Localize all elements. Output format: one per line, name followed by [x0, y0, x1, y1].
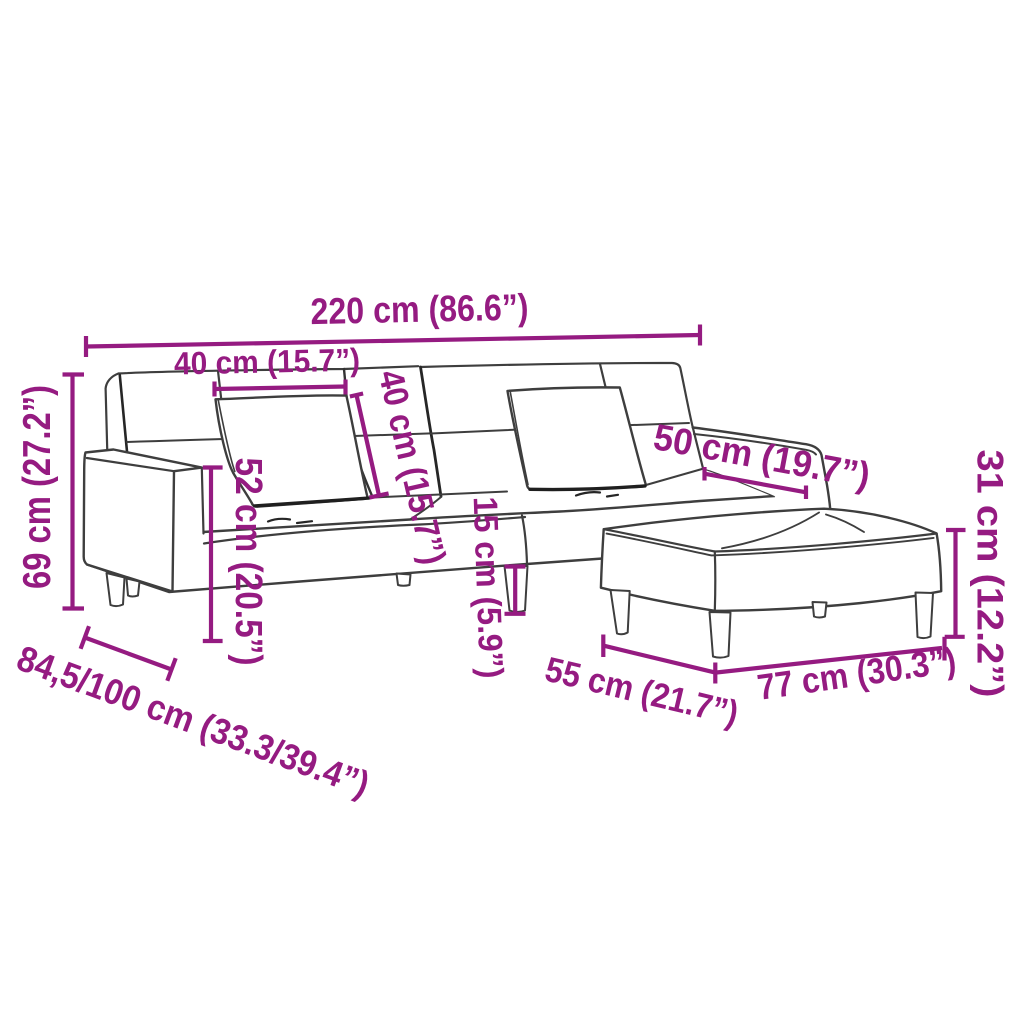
svg-text:15 cm (5.9”): 15 cm (5.9”) [466, 496, 510, 679]
svg-text:77 cm (30.3”): 77 cm (30.3”) [755, 639, 959, 708]
svg-text:220 cm (86.6”): 220 cm (86.6”) [310, 287, 529, 333]
svg-text:40 cm (15.7”): 40 cm (15.7”) [174, 342, 361, 382]
svg-text:31 cm (12.2”): 31 cm (12.2”) [970, 450, 1011, 698]
svg-text:52 cm (20.5”): 52 cm (20.5”) [227, 458, 269, 666]
svg-text:84,5/100 cm (33.3/39.4”): 84,5/100 cm (33.3/39.4”) [12, 637, 375, 805]
svg-text:55 cm (21.7”): 55 cm (21.7”) [541, 650, 742, 734]
svg-text:69 cm (27.2”): 69 cm (27.2”) [16, 385, 59, 589]
